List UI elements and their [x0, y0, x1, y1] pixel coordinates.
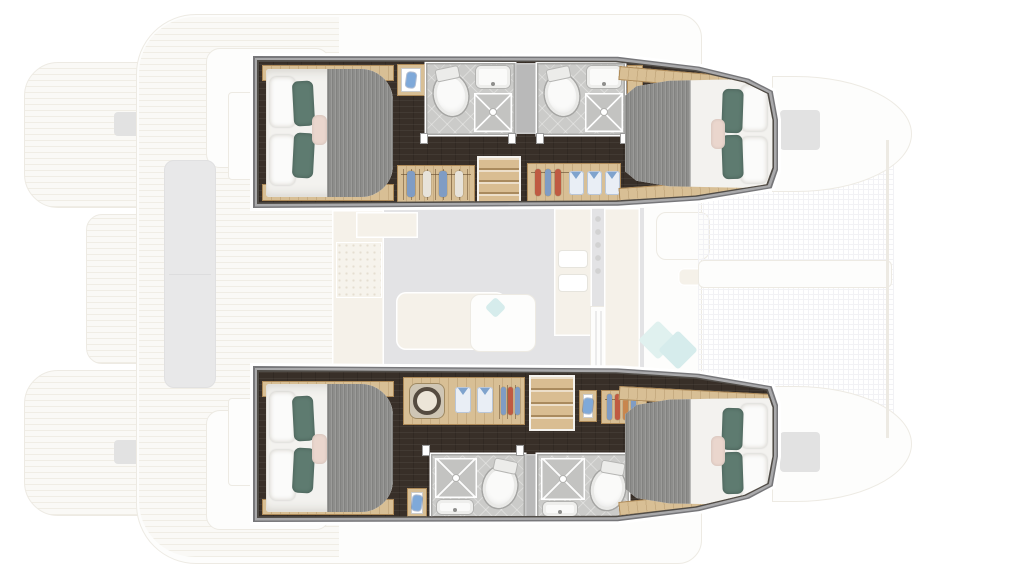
- saloon-cabinet: [356, 212, 418, 238]
- pillow-blush: [312, 115, 327, 145]
- catamaran-floorplan: [0, 0, 1024, 576]
- pillow-white: [270, 450, 295, 500]
- bed-forward-starboard: [625, 398, 773, 506]
- vanity-cabinet: [407, 488, 427, 518]
- stair-tread: [531, 377, 573, 391]
- garment: [535, 169, 541, 196]
- washbasin-icon: [543, 502, 577, 516]
- bathroom-4: [537, 454, 629, 520]
- garment: [515, 387, 520, 415]
- bathroom-2: [537, 63, 625, 135]
- bed-forward-port: [625, 79, 773, 189]
- stair-tread: [479, 170, 519, 182]
- saloon-sofa: [470, 294, 536, 352]
- washbasin-icon: [437, 500, 473, 514]
- washbasin-icon: [587, 66, 621, 88]
- garment: [407, 171, 415, 197]
- stair-tread: [479, 158, 519, 170]
- washing-machine-icon: [409, 383, 445, 419]
- garment: [439, 171, 447, 197]
- wardrobe-with-washer: [403, 377, 525, 425]
- lower-hull: [253, 366, 778, 522]
- folded-shirt: [569, 171, 584, 195]
- upper-hull: [253, 56, 778, 208]
- wardrobe-shirts: [527, 163, 621, 204]
- galley-counter-forward: [604, 208, 640, 368]
- door-jamb: [517, 446, 523, 455]
- bathroom-divider-wall: [525, 454, 537, 518]
- vanity-sink-icon: [405, 71, 416, 87]
- pillow-teal: [291, 395, 314, 441]
- pillow-white: [741, 137, 767, 183]
- pillow-blush: [312, 434, 327, 464]
- shower-icon: [541, 458, 585, 500]
- trampoline-walkway: [698, 260, 892, 288]
- toilet-icon: [479, 462, 521, 510]
- cockpit-bench: [164, 160, 216, 388]
- shower-icon: [585, 93, 623, 132]
- door-jamb: [537, 134, 543, 143]
- bed-aft-starboard: [266, 384, 393, 512]
- foredeck-hatch-port: [780, 110, 820, 150]
- washbasin-icon: [476, 66, 510, 88]
- toilet-icon: [541, 70, 583, 118]
- bathroom-1: [426, 63, 515, 135]
- bed-blanket: [625, 79, 691, 189]
- bed-aft-port: [266, 69, 393, 197]
- lower-hull-interior: [259, 372, 773, 517]
- door-jamb: [421, 134, 427, 143]
- garment: [508, 387, 513, 415]
- vanity-sink-icon: [582, 397, 593, 413]
- stair-tread: [531, 390, 573, 404]
- stair-tread: [479, 182, 519, 194]
- galley-counter: [554, 208, 592, 336]
- garment: [545, 169, 551, 196]
- bathroom-3: [431, 454, 525, 518]
- companionway-stairs: [479, 158, 519, 204]
- saloon-speaker-panel: [336, 242, 382, 298]
- garment: [423, 171, 431, 197]
- folded-shirt: [455, 387, 471, 413]
- bathroom-divider-wall: [515, 63, 537, 134]
- folded-shirt: [477, 387, 493, 413]
- garment: [501, 387, 506, 415]
- shower-icon: [474, 93, 512, 132]
- garment: [555, 169, 561, 196]
- pillow-white: [741, 404, 767, 448]
- wardrobe-hanging: [397, 165, 475, 204]
- stair-tread: [531, 404, 573, 418]
- pillow-blush: [711, 119, 725, 149]
- bed-blanket: [327, 69, 393, 197]
- pillow-white: [270, 392, 295, 442]
- toilet-icon: [430, 70, 472, 118]
- garment: [607, 394, 612, 420]
- vanity-sink-icon: [411, 494, 422, 510]
- shower-icon: [435, 458, 477, 498]
- folded-shirt: [587, 171, 602, 195]
- galley-sink-1: [558, 250, 588, 268]
- foredeck-hatch-starboard: [780, 432, 820, 472]
- door-jamb: [423, 446, 429, 455]
- garment: [455, 171, 463, 197]
- folded-shirt: [605, 171, 620, 195]
- bed-blanket: [327, 384, 393, 512]
- door-jamb: [509, 134, 515, 143]
- stair-tread: [531, 417, 573, 429]
- bed-blanket: [625, 398, 691, 506]
- upper-hull-interior: [259, 62, 773, 203]
- galley-sink-2: [558, 274, 588, 292]
- vanity-cabinet: [397, 64, 425, 96]
- pillow-white: [270, 135, 295, 185]
- pillow-white: [270, 77, 295, 127]
- forward-crossbeam: [886, 140, 889, 438]
- vanity-cabinet: [579, 390, 597, 422]
- companionway-stairs: [531, 377, 573, 429]
- pillow-blush: [711, 436, 725, 466]
